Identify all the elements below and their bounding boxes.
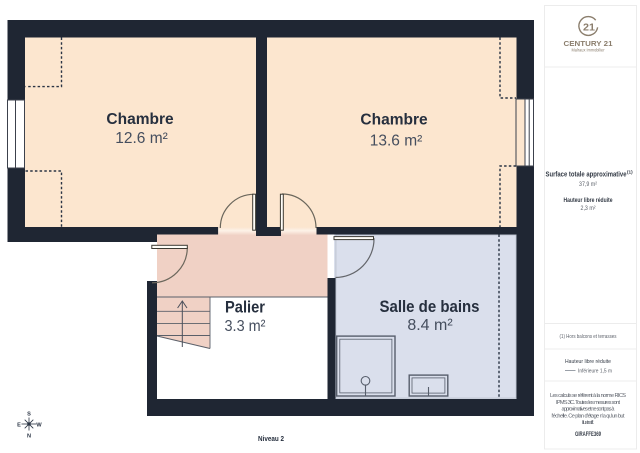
svg-text:37,9 m²: 37,9 m² (579, 181, 598, 188)
svg-text:(1) Hors balcons et terrasses: (1) Hors balcons et terrasses (560, 334, 617, 340)
svg-text:Surface totale approximative: Surface totale approximative (546, 170, 627, 179)
svg-text:Malraux Immobilier: Malraux Immobilier (572, 48, 606, 53)
svg-text:2,3 m²: 2,3 m² (581, 205, 597, 212)
svg-text:N: N (27, 434, 31, 440)
svg-text:W: W (36, 422, 42, 428)
svg-text:GIRAFFE369: GIRAFFE369 (575, 432, 601, 438)
svg-text:illustratif.: illustratif. (582, 420, 594, 426)
svg-text:Palier: Palier (225, 299, 266, 317)
svg-text:Inférieure 1,5 m: Inférieure 1,5 m (578, 369, 612, 375)
svg-text:S: S (27, 412, 31, 418)
svg-text:Les calculs se réfèrent à la n: Les calculs se réfèrent à la norme RICS (550, 393, 626, 399)
svg-text:13.6 m²: 13.6 m² (370, 133, 423, 150)
svg-text:Niveau 2: Niveau 2 (258, 434, 284, 443)
svg-text:Chambre: Chambre (106, 111, 174, 128)
svg-text:Hauteur libre réduite: Hauteur libre réduite (565, 359, 611, 365)
svg-text:IPMS 3C. Toutes les mesures so: IPMS 3C. Toutes les mesures sont (556, 400, 620, 406)
svg-text:(1): (1) (627, 170, 633, 175)
svg-text:3.3 m²: 3.3 m² (225, 318, 267, 335)
svg-text:Chambre: Chambre (360, 112, 428, 129)
svg-text:8.4 m²: 8.4 m² (407, 317, 453, 334)
svg-text:21: 21 (583, 22, 595, 34)
svg-text:Salle de bains: Salle de bains (380, 298, 480, 316)
svg-text:approximatives et ne sont pas: approximatives et ne sont pas à (562, 407, 616, 413)
svg-text:12.6 m²: 12.6 m² (115, 130, 168, 147)
svg-text:l'échelle. Ce plan d'étage n'a: l'échelle. Ce plan d'étage n'a qu'un but (552, 413, 625, 419)
svg-text:Hauteur libre réduite: Hauteur libre réduite (564, 197, 613, 204)
svg-text:E: E (17, 422, 21, 428)
